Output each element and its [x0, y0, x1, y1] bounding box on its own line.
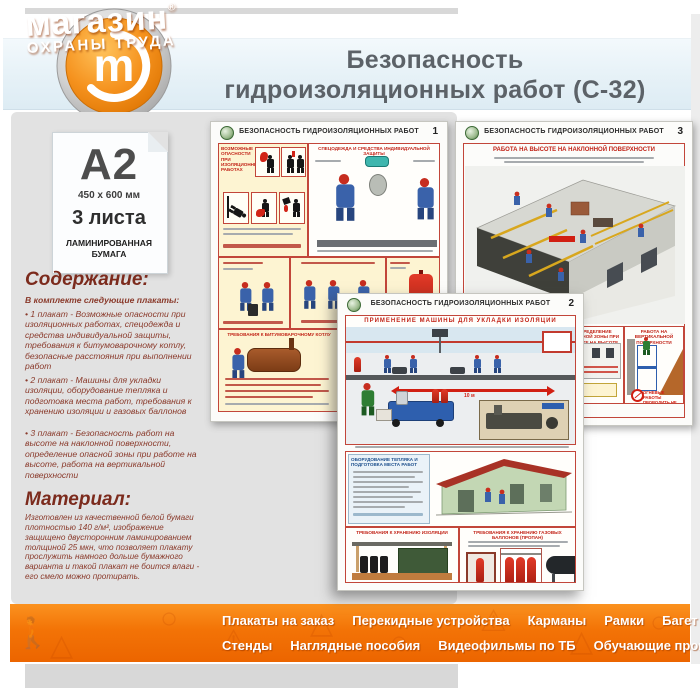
poster-2-thumbnail[interactable]: БЕЗОПАСНОСТЬ ГИДРОИЗОЛЯЦИОННЫХ РАБОТ 2 П… — [337, 293, 584, 591]
menu-item-pockets[interactable]: Карманы — [528, 613, 587, 628]
bitumen-boiler-icon — [247, 348, 301, 372]
registered-mark: ® — [167, 1, 177, 13]
primer-panel — [218, 257, 290, 329]
worker-figure — [331, 174, 357, 221]
poster-emblem-icon — [220, 126, 234, 140]
menu-item-stands[interactable]: Стенды — [222, 638, 272, 653]
goggles-icon — [365, 156, 389, 167]
poster-2-header: БЕЗОПАСНОСТЬ ГИДРОИЗОЛЯЦИОННЫХ РАБОТ 2 — [338, 294, 583, 314]
menu-item-safety-videos[interactable]: Видеофильмы по ТБ — [438, 638, 575, 653]
cylinder-cabinet-icon — [466, 552, 496, 583]
footer-menu-row-1: Плакаты на заказ Перекидные устройства К… — [222, 613, 690, 628]
contents-item-3: • 3 плакат - Безопасность работ на высот… — [25, 428, 199, 480]
hazard-pictogram — [251, 192, 277, 224]
page-title-line2: гидроизоляционных работ (С-32) — [185, 75, 685, 105]
respirator-icon — [369, 174, 387, 196]
poster-2-number: 2 — [568, 298, 574, 309]
teplyak-list: ОБОРУДОВАНИЕ ТЕПЛЯКА И ПОДГОТОВКА МЕСТА … — [348, 454, 430, 524]
wall-icon — [627, 339, 635, 395]
poster-2-body: ПРИМЕНЕНИЕ МАШИНЫ ДЛЯ УКЛАДКИ ИЗОЛЯЦИИ 1… — [345, 315, 576, 583]
poster-emblem-icon — [347, 298, 361, 312]
material-text: Изготовлен из качественной белой бумаги … — [25, 513, 201, 582]
hazard-pictogram — [279, 192, 305, 224]
contents-intro: В комплекте следующие плакаты: — [25, 295, 197, 305]
poster-3-header: БЕЗОПАСНОСТЬ ГИДРОИЗОЛЯЦИОННЫХ РАБОТ 3 — [456, 122, 692, 142]
hazard-pictogram — [281, 147, 306, 177]
boiler-panel: ТРЕБОВАНИЯ К БИТУМОВАРОЧНОМУ КОТЛУ — [218, 329, 340, 412]
slope-work-title: РАБОТА НА ВЫСОТЕ НА НАКЛОННОЙ ПОВЕРХНОСТ… — [466, 147, 682, 154]
roller-machine-icon — [450, 367, 465, 374]
distance-label: 10 м — [464, 393, 475, 399]
poster-1-header: БЕЗОПАСНОСТЬ ГИДРОИЗОЛЯЦИОННЫХ РАБОТ 1 — [211, 122, 447, 142]
machine-inset-diagram — [479, 400, 569, 440]
bottom-divider — [25, 664, 458, 688]
poster-1-title: БЕЗОПАСНОСТЬ ГИДРОИЗОЛЯЦИОННЫХ РАБОТ — [235, 128, 423, 135]
machine-scene-panel: ПРИМЕНЕНИЕ МАШИНЫ ДЛЯ УКЛАДКИ ИЗОЛЯЦИИ 1… — [345, 315, 576, 445]
sheets-count-label: 3 листа — [52, 207, 166, 230]
cylinder-storage-panel: ТРЕБОВАНИЯ К ХРАНЕНИЮ ГАЗОВЫХ БАЛЛОНОВ (… — [459, 527, 576, 583]
menu-item-frames[interactable]: Рамки — [604, 613, 644, 628]
poster-emblem-icon — [465, 126, 479, 140]
page-title-line1: Безопасность — [185, 45, 685, 75]
footer-menu: Плакаты на заказ Перекидные устройства К… — [222, 604, 690, 662]
distance-arrow — [398, 389, 548, 392]
ppe-panel: СПЕЦОДЕЖДА И СРЕДСТВА ИНДИВИДУАЛЬНОЙ ЗАЩ… — [308, 143, 440, 257]
format-label: A2 — [52, 140, 166, 190]
contents-item-2: • 2 плакат - Машины для укладки изоляции… — [25, 375, 199, 417]
vertical-work-panel: РАБОТА НА ВЕРТИКАЛЬНОЙ ПОВЕРХНОСТИ ОГНЕВ… — [624, 326, 684, 404]
page-title: Безопасность гидроизоляционных работ (С-… — [185, 45, 685, 105]
footer-store-logo[interactable]: магазин® ОХРАНЫ ТРУДА — [25, 0, 179, 57]
menu-item-baguette[interactable]: Багет — [662, 613, 697, 628]
menu-item-visual-aids[interactable]: Наглядные пособия — [290, 638, 420, 653]
menu-item-flip-devices[interactable]: Перекидные устройства — [352, 613, 509, 628]
menu-item-training-programs[interactable]: Обучающие программы — [594, 638, 700, 653]
menu-item-posters[interactable]: Плакаты на заказ — [222, 613, 334, 628]
safety-sign-watermark: ○ — [160, 604, 178, 636]
fire-warning-text: ОГНЕВЫЕ РАБОТЫ ПРОВОДИТЬ НЕ БЛИЖЕ 50 М — [643, 391, 682, 404]
teplyak-panel: ОБОРУДОВАНИЕ ТЕПЛЯКА И ПОДГОТОВКА МЕСТА … — [345, 451, 576, 527]
mixing-pot-icon — [248, 304, 258, 316]
worker-figure — [641, 337, 651, 355]
material-heading: Материал: — [25, 489, 197, 511]
hazard-pictogram — [223, 192, 249, 224]
ground-strip — [317, 240, 437, 247]
ground-strip — [352, 573, 452, 580]
worker-figure — [413, 178, 436, 219]
soil-slope — [659, 349, 683, 395]
insulation-storage-panel: ТРЕБОВАНИЯ К ХРАНЕНИЮ ИЗОЛЯЦИИ — [345, 527, 459, 583]
poster-3-number: 3 — [677, 126, 683, 137]
poster-1-number: 1 — [432, 126, 438, 137]
hazards-panel: ВОЗМОЖНЫЕ ОПАСНОСТИ ПРИ ИЗОЛЯЦИОННЫХ РАБ… — [218, 143, 308, 257]
operator-figure — [358, 383, 376, 415]
roof-deck: 10 м — [346, 353, 575, 444]
shed-illustration — [432, 454, 576, 524]
safety-sign-watermark: △ — [50, 628, 73, 662]
propane-tank-icon — [546, 556, 576, 574]
hazard-pictogram — [255, 147, 280, 177]
poster-2-title: БЕЗОПАСНОСТЬ ГИДРОИЗОЛЯЦИОННЫХ РАБОТ — [362, 300, 559, 307]
contents-heading: Содержание: — [25, 269, 197, 291]
contents-item-1: • 1 плакат - Возможные опасности при изо… — [25, 309, 199, 372]
container-icon — [398, 548, 448, 576]
safety-sign-watermark: 🚶 — [14, 616, 51, 651]
roller-machine-icon — [392, 367, 407, 374]
cylinder-group — [500, 548, 542, 583]
laying-machine-icon — [388, 395, 452, 425]
sky-band — [346, 327, 575, 353]
format-size-label: 450 x 600 мм — [52, 190, 166, 201]
extinguisher-icon — [354, 357, 361, 372]
footer-menu-row-2: Стенды Наглядные пособия Видеофильмы по … — [222, 638, 690, 653]
poster-3-title: БЕЗОПАСНОСТЬ ГИДРОИЗОЛЯЦИОННЫХ РАБОТ — [480, 128, 668, 135]
paper-type-label: ЛАМИНИРОВАННАЯ БУМАГА — [52, 238, 166, 260]
